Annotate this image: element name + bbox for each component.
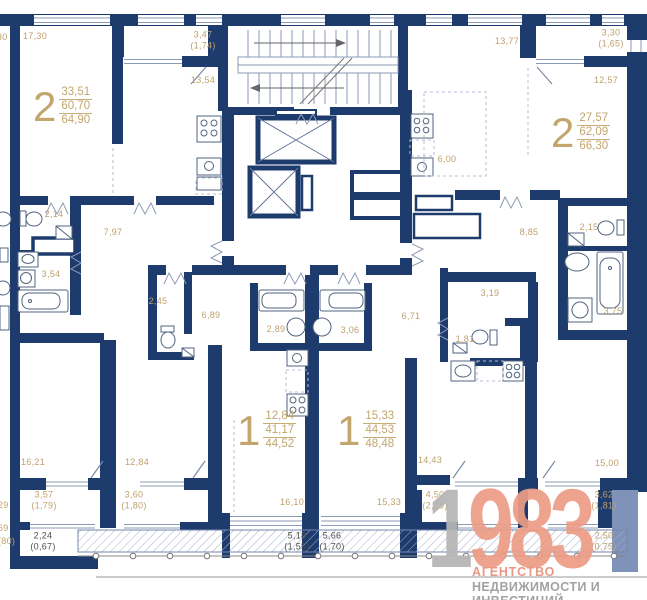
dim-label: 69 — [0, 523, 9, 534]
logo-year-prefix: 1 — [427, 466, 468, 591]
apartment-areas: 27,57 62,09 66,30 — [577, 112, 610, 153]
apartment-rooms-count: 2 — [33, 89, 56, 125]
total-area-with-balcony: 66,30 — [577, 140, 610, 153]
living-area: 15,33 — [363, 410, 396, 424]
apartment-areas: 12,84 41,17 44,52 — [263, 410, 296, 451]
dim-label: 2,89 — [267, 324, 286, 335]
dim-label: 8,85 — [520, 227, 539, 238]
dim-label: 29 — [0, 500, 9, 511]
total-area-with-balcony: 48,48 — [363, 438, 396, 451]
total-area: 41,17 — [263, 424, 296, 438]
total-area: 62,09 — [577, 126, 610, 140]
living-area: 33,51 — [59, 86, 92, 100]
balcony-dim-label: 2,24 (0,67) — [30, 531, 55, 552]
dim-label: 15,33 — [377, 497, 401, 508]
dim-label: 12,84 — [125, 457, 149, 468]
apartment-rooms-count: 1 — [337, 413, 360, 449]
dim-label: 16,21 — [21, 457, 45, 468]
dim-label: 17,30 — [23, 31, 47, 42]
agency-name-line2: НЕДВИЖИМОСТИ И ИНВЕСТИЦИЙ — [472, 580, 647, 600]
dim-label: 3,75 — [604, 306, 623, 317]
dim-label: 2,15 — [580, 222, 599, 233]
total-area-with-balcony: 64,90 — [59, 114, 92, 127]
dim-label: 15,00 — [595, 458, 619, 469]
dim-label: 7,97 — [104, 227, 123, 238]
living-area: 12,84 — [263, 410, 296, 424]
dim-label: 3,30 (1,65) — [598, 28, 623, 49]
agency-logo: 1983 АГЕНТСТВО НЕДВИЖИМОСТИ И ИНВЕСТИЦИЙ — [427, 484, 647, 600]
dim-label: 6,00 — [438, 154, 457, 165]
apartment-areas: 33,51 60,70 64,90 — [59, 86, 92, 127]
dim-label: 30 — [0, 32, 8, 43]
staircase — [238, 30, 398, 104]
logo-year: 1983 — [427, 484, 590, 574]
apartment-areas: 15,33 44,53 48,48 — [363, 410, 396, 451]
dim-label: 13,77 — [495, 36, 519, 47]
dim-label: (80) — [0, 536, 15, 547]
dim-label: 2,14 — [45, 209, 64, 220]
dim-label: 3,54 — [42, 269, 61, 280]
balcony-dim-label: 5,18 (1,55) — [284, 531, 309, 552]
dim-label: 14,43 — [418, 455, 442, 466]
dim-label: 6,71 — [402, 311, 421, 322]
balcony-dim-label: 5,66 (1,70) — [319, 531, 344, 552]
dim-label: 12,57 — [594, 75, 618, 86]
dim-label: 3,47 (1,74) — [190, 30, 215, 51]
dim-label: 3,57 (1,79) — [31, 490, 56, 511]
dim-label: 3,19 — [481, 288, 500, 299]
dim-label: 3,60 (1,80) — [121, 490, 146, 511]
total-area-with-balcony: 44,52 — [263, 438, 296, 451]
dim-label: 2,45 — [149, 296, 168, 307]
dim-label: 16,10 — [280, 497, 304, 508]
apartment-card-left-1room: 1 12,84 41,17 44,52 — [237, 410, 296, 451]
total-area: 60,70 — [59, 100, 92, 114]
dim-label: 1,81 — [456, 334, 475, 345]
apartment-card-left-2room: 2 33,51 60,70 64,90 — [33, 86, 92, 127]
dim-label: 13,54 — [191, 75, 215, 86]
apartment-rooms-count: 1 — [237, 413, 260, 449]
dim-label: 6,89 — [202, 310, 221, 321]
apartment-card-right-2room: 2 27,57 62,09 66,30 — [551, 112, 610, 153]
agency-name-line1: АГЕНТСТВО — [472, 565, 555, 579]
apartment-card-right-1room: 1 15,33 44,53 48,48 — [337, 410, 396, 451]
dim-label: 3,06 — [341, 325, 360, 336]
floor-plan-page: 17,30 30 3,47 (1,74) 13,54 13,77 3,30 (1… — [0, 0, 647, 600]
total-area: 44,53 — [363, 424, 396, 438]
living-area: 27,57 — [577, 112, 610, 126]
apartment-rooms-count: 2 — [551, 115, 574, 151]
